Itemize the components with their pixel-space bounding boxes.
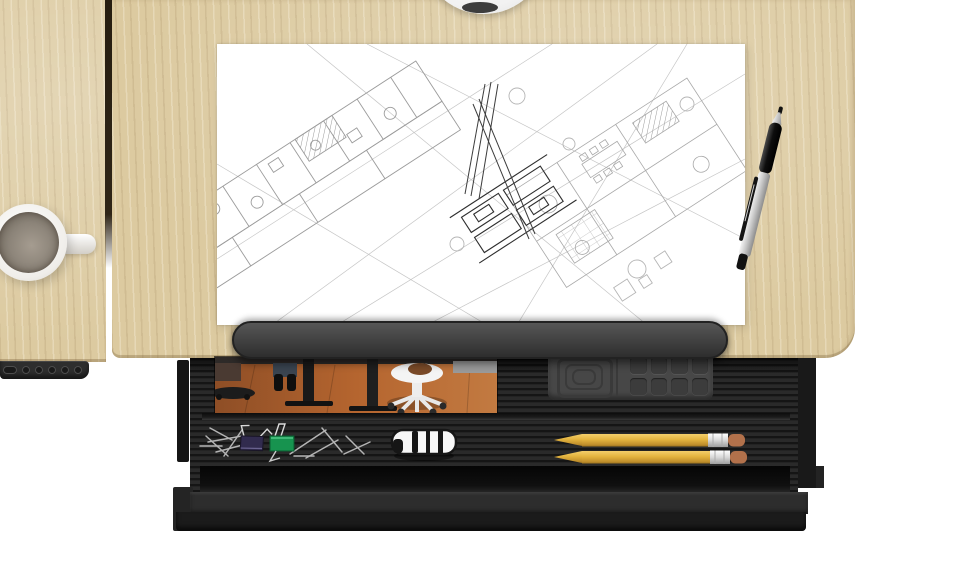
blueprint-paper (217, 44, 745, 325)
toy-car (386, 423, 462, 463)
photo-left-chair-base (215, 387, 255, 400)
pencil-bottom (554, 451, 747, 465)
height-controller-keypad (0, 361, 89, 379)
keypad-button (61, 366, 69, 374)
paperclips-cluster (198, 416, 378, 470)
blueprint-drawing (217, 44, 745, 325)
keypad-button (22, 366, 30, 374)
pencil-top (554, 434, 745, 448)
drawer-front-top-edge (190, 492, 808, 514)
pen-end-cap (736, 253, 749, 271)
organizer-divider (616, 356, 618, 396)
blueprint-wall-lines (465, 82, 535, 239)
round-object-notch (462, 2, 498, 13)
organizer-cell (651, 357, 668, 374)
keypad-button (3, 366, 17, 374)
keypad-button (74, 366, 82, 374)
pen-body (734, 105, 787, 271)
organizer-cell (671, 378, 688, 395)
drawer-left-rail (177, 360, 189, 462)
desk-seam (105, 0, 112, 268)
pen-tray-lid-bar (232, 321, 728, 359)
organizer-cell (630, 357, 647, 374)
car-pillar (426, 431, 430, 453)
organizer-cell (692, 378, 709, 395)
desk-return-surface (0, 0, 106, 362)
organizer-cell (671, 357, 688, 374)
photo-wall (453, 361, 497, 373)
drawer-right-tab (816, 466, 824, 488)
organizer-grid (630, 357, 708, 395)
coffee-surface (0, 212, 59, 273)
blueprint-small-squares (612, 251, 676, 302)
keypad-button (48, 366, 56, 374)
organizer-recess-inner (572, 369, 596, 385)
photo-shoes (408, 363, 432, 375)
photo-office-scene (215, 357, 497, 413)
photo-cabinet (215, 363, 241, 381)
car-rear-window (438, 431, 443, 453)
blueprint-room-band-left (217, 61, 460, 299)
pen-grip (758, 121, 783, 175)
organizer-cell (651, 378, 668, 395)
pencil-eraser (730, 451, 747, 464)
binder-clip-dark (236, 424, 273, 456)
desk-render-scene (0, 0, 960, 570)
organizer-cell (630, 378, 647, 395)
car-windshield (412, 431, 418, 453)
keypad-button (35, 366, 43, 374)
pencils (552, 432, 750, 468)
drawer-floor (200, 466, 790, 494)
drawer-front-bottom-edge (176, 512, 806, 531)
ballpoint-pen (704, 98, 816, 280)
pencil-eraser (728, 434, 745, 447)
organizer-cell (692, 357, 709, 374)
drawer-right-band (798, 358, 816, 488)
car-front-detail (393, 439, 403, 453)
drawer-photo-print (215, 357, 497, 413)
drawer-organizer-tray (548, 352, 713, 400)
binder-clip-green (270, 424, 294, 461)
